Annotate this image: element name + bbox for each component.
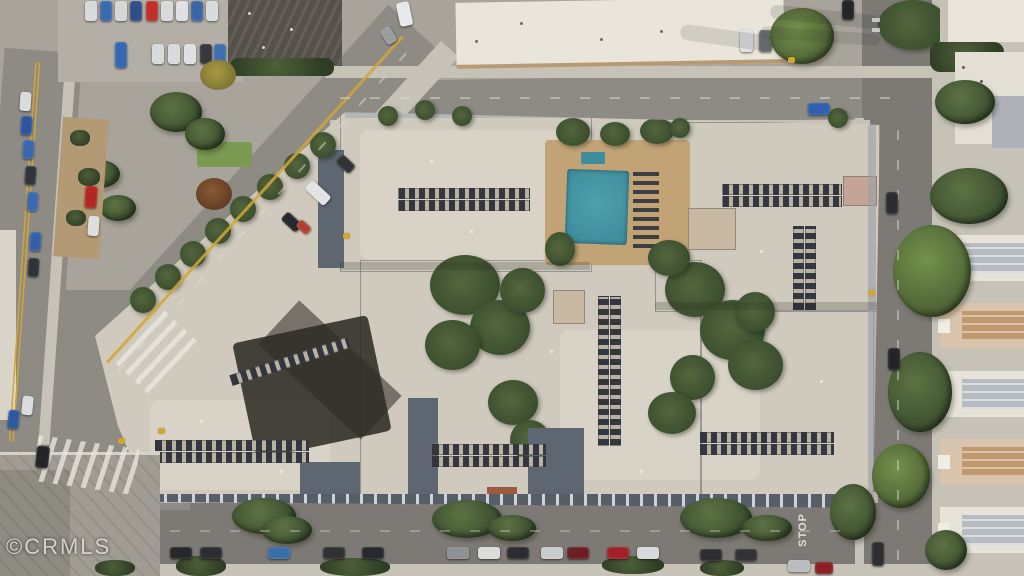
palm-tree: [828, 108, 848, 128]
parked-car: [541, 547, 563, 559]
parked-car: [478, 547, 500, 559]
townhouse-roof: [948, 0, 1024, 42]
parked-car: [84, 186, 98, 209]
parked-car: [168, 44, 180, 64]
moving-car: [808, 103, 830, 115]
townhouse-roof: [962, 243, 1024, 273]
bike-lane-marking: [872, 18, 880, 22]
palm-tree: [378, 106, 398, 126]
parked-car: [24, 166, 36, 186]
dark-roof-building: [228, 0, 342, 66]
parked-car: [447, 547, 469, 559]
parked-car: [200, 547, 222, 559]
bush: [320, 558, 390, 576]
lane-dashes: [340, 97, 900, 99]
parked-car: [700, 549, 722, 561]
parked-car: [29, 232, 41, 252]
spa: [581, 152, 605, 164]
building-shadow: [0, 470, 70, 576]
parked-car: [323, 547, 345, 559]
roof-vent: [475, 40, 478, 43]
parked-car: [21, 395, 34, 415]
bush: [95, 560, 135, 576]
parked-car: [161, 1, 173, 21]
parked-car: [184, 44, 196, 64]
parked-car: [567, 547, 589, 559]
swimming-pool: [565, 169, 630, 245]
street-tree: [742, 515, 792, 541]
stop-road-marking: STOP: [797, 513, 809, 547]
parked-car: [100, 1, 112, 21]
roof-vent: [660, 30, 663, 33]
lounge-chairs: [633, 172, 659, 248]
parked-car: [176, 1, 188, 21]
townhouse-roof: [962, 447, 1024, 477]
moving-car: [872, 542, 884, 566]
palm-tree: [415, 100, 435, 120]
roof-vent: [262, 46, 265, 49]
roof-vent: [290, 28, 293, 31]
parked-car: [85, 1, 97, 21]
street-tree: [925, 530, 967, 570]
bay-window: [938, 455, 950, 469]
parked-car: [19, 92, 31, 112]
street-tree: [680, 498, 752, 538]
curb-ramp: [343, 233, 350, 239]
roof-vent: [520, 22, 523, 25]
parked-car: [268, 547, 290, 559]
parked-car: [788, 560, 810, 572]
palm-tree: [670, 118, 690, 138]
complex-footprint: [80, 100, 890, 515]
curb-ramp: [118, 438, 125, 444]
roof-vent: [600, 38, 603, 41]
bay-window: [938, 319, 950, 333]
palm-tree: [257, 174, 283, 200]
parked-car: [26, 192, 38, 212]
bush: [176, 556, 226, 576]
parked-car: [152, 44, 164, 64]
parked-car: [130, 1, 142, 21]
parked-car: [735, 549, 757, 561]
moving-car: [842, 0, 854, 20]
parked-car: [191, 1, 203, 21]
hedge: [230, 58, 334, 76]
parked-car: [20, 116, 32, 136]
parked-car: [815, 562, 833, 574]
street-tree: [930, 168, 1008, 224]
street-tree: [935, 80, 995, 124]
parked-car: [87, 216, 99, 237]
parked-car: [206, 1, 218, 21]
curb-ramp: [158, 428, 165, 434]
curb-ramp: [788, 57, 795, 63]
curb-ramp: [868, 290, 875, 296]
street-tree: [893, 225, 971, 317]
street-tree: [872, 444, 930, 508]
townhouse-roof: [962, 311, 1024, 341]
parked-car: [507, 547, 529, 559]
townhouse-roof: [962, 379, 1024, 409]
street-tree: [488, 515, 536, 541]
parked-car: [22, 140, 34, 160]
palm-tree: [452, 106, 472, 126]
roof-vent: [248, 12, 251, 15]
bike-lane-marking: [872, 28, 880, 32]
moving-car: [888, 348, 900, 370]
bush: [700, 560, 744, 576]
moving-car: [35, 445, 50, 468]
townhouse-roof: [962, 515, 1024, 545]
moving-car: [886, 192, 898, 214]
parked-car: [115, 1, 127, 21]
yellow-tree: [200, 60, 236, 90]
parked-car: [637, 547, 659, 559]
parked-car: [7, 409, 20, 429]
parked-car: [607, 547, 629, 559]
lane-dashes: [170, 530, 860, 532]
parked-car: [170, 547, 192, 559]
townhouse-roof-panel: [992, 96, 1024, 148]
aerial-photo-scene: STOP ©CRMLS: [0, 0, 1024, 576]
crmls-watermark: ©CRMLS: [6, 534, 111, 560]
parked-car: [27, 258, 39, 278]
parked-car: [146, 1, 158, 21]
parked-car: [362, 547, 384, 559]
window: [962, 66, 965, 69]
apartment-complex-roof: [80, 100, 890, 515]
parked-van: [115, 42, 127, 68]
